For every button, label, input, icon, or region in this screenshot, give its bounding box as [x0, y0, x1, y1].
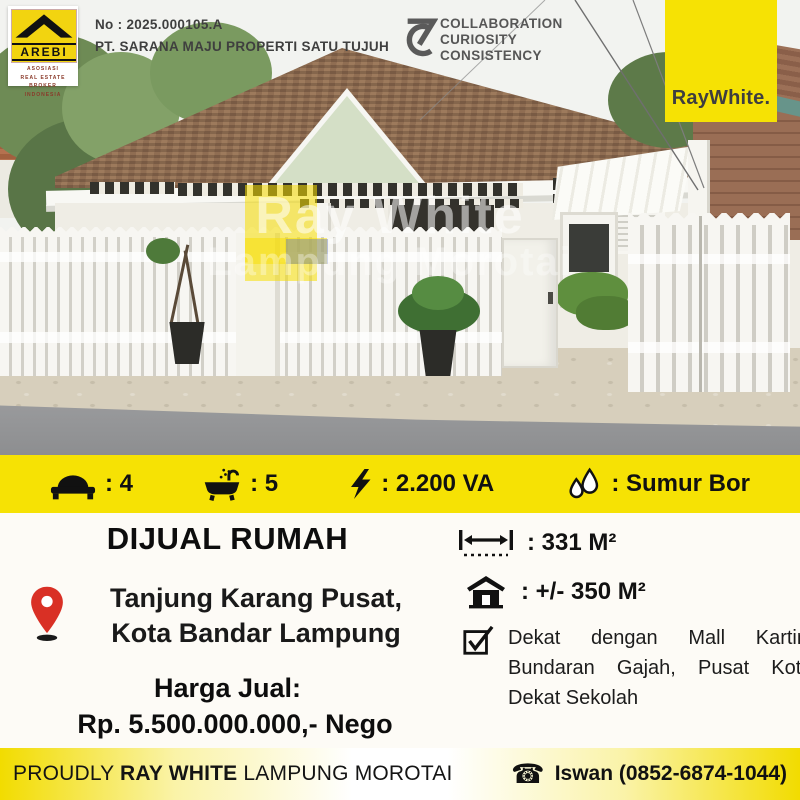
listing-location: Tanjung Karang Pusat, Kota Bandar Lampun…: [72, 581, 440, 651]
company-name: PT. SARANA MAJU PROPERTI SATU TUJUH: [95, 36, 389, 58]
footer-office: LAMPUNG MOROTAI: [243, 762, 452, 785]
land-width-icon: [458, 529, 514, 557]
nearby-row: Dekat dengan Mall Kartini, Bundaran Gaja…: [462, 623, 800, 713]
footer-brand: RAY WHITE: [120, 762, 237, 785]
price-value: Rp. 5.500.000.000,- Nego: [0, 709, 470, 740]
property-photo: Ray White Lampung Morotai AREBI ASOSIASI…: [0, 0, 800, 455]
feature-bedrooms: : 4: [50, 468, 133, 500]
price-label: Harga Jual:: [0, 673, 455, 704]
footer-bar: PROUDLY RAY WHITE LAMPUNG MOROTAI ☎ Iswa…: [0, 748, 800, 800]
building-area-row: : +/- 350 M²: [466, 575, 646, 609]
feature-electricity: : 2.200 VA: [348, 466, 494, 502]
roof-chevron-icon: [13, 13, 75, 39]
raywhite-logo-text: RayWhite.: [665, 87, 777, 110]
values-text: COLLABORATION CURIOSITY CONSISTENCY: [440, 16, 563, 64]
listing-number: No : 2025.000105.A: [95, 14, 389, 36]
water-icon: [564, 467, 602, 501]
listing-info: DIJUAL RUMAH Tanjung Karang Pusat, Kota …: [0, 513, 800, 748]
bedrooms-value: : 4: [105, 470, 133, 498]
footer-contact: ☎ Iswan (0852-6874-1044): [511, 761, 787, 788]
arebi-logo-box: AREBI: [11, 9, 77, 63]
water-value: : Sumur Bor: [611, 470, 750, 498]
raywhite-logo-box: RayWhite.: [665, 0, 777, 122]
location-line2: Kota Bandar Lampung: [72, 616, 440, 651]
footer-prefix: PROUDLY: [13, 762, 114, 785]
feature-bathrooms: : 5: [203, 466, 278, 502]
feature-water: : Sumur Bor: [564, 467, 750, 501]
phone-icon: ☎: [511, 761, 545, 788]
listing-title: DIJUAL RUMAH: [0, 521, 455, 557]
land-area-row: : 331 M²: [458, 529, 616, 557]
bathrooms-value: : 5: [250, 470, 278, 498]
location-line1: Tanjung Karang Pusat,: [72, 581, 440, 616]
watermark-brand: Ray White: [10, 186, 770, 246]
arebi-subtitle: ASOSIASI REAL ESTATE BROKER INDONESIA: [11, 65, 75, 99]
building-icon: [466, 575, 506, 609]
bath-icon: [203, 466, 241, 502]
property-listing-poster: Ray White Lampung Morotai AREBI ASOSIASI…: [0, 0, 800, 800]
listing-header-text: No : 2025.000105.A PT. SARANA MAJU PROPE…: [95, 14, 389, 59]
checkbox-icon: [462, 625, 494, 657]
bed-icon: [50, 468, 96, 500]
electricity-icon: [348, 466, 372, 502]
watermark-office: Lampung Morotai: [10, 240, 770, 285]
location-pin-icon: [30, 585, 64, 643]
footer-office-line: PROUDLY RAY WHITE LAMPUNG MOROTAI: [13, 762, 453, 786]
electricity-value: : 2.200 VA: [381, 470, 494, 498]
feature-bar: : 4 : 5 : 2.200 VA : Sumur Bo: [0, 455, 800, 513]
arebi-logo: AREBI ASOSIASI REAL ESTATE BROKER INDONE…: [8, 6, 78, 86]
building-area-value: : +/- 350 M²: [521, 578, 646, 606]
arebi-name: AREBI: [12, 43, 76, 61]
seven-c-icon: [398, 16, 438, 60]
agent-contact: Iswan (0852-6874-1044): [555, 762, 787, 786]
land-area-value: : 331 M²: [527, 529, 616, 557]
nearby-text: Dekat dengan Mall Kartini, Bundaran Gaja…: [508, 623, 800, 713]
values-logo: COLLABORATION CURIOSITY CONSISTENCY: [398, 16, 563, 64]
